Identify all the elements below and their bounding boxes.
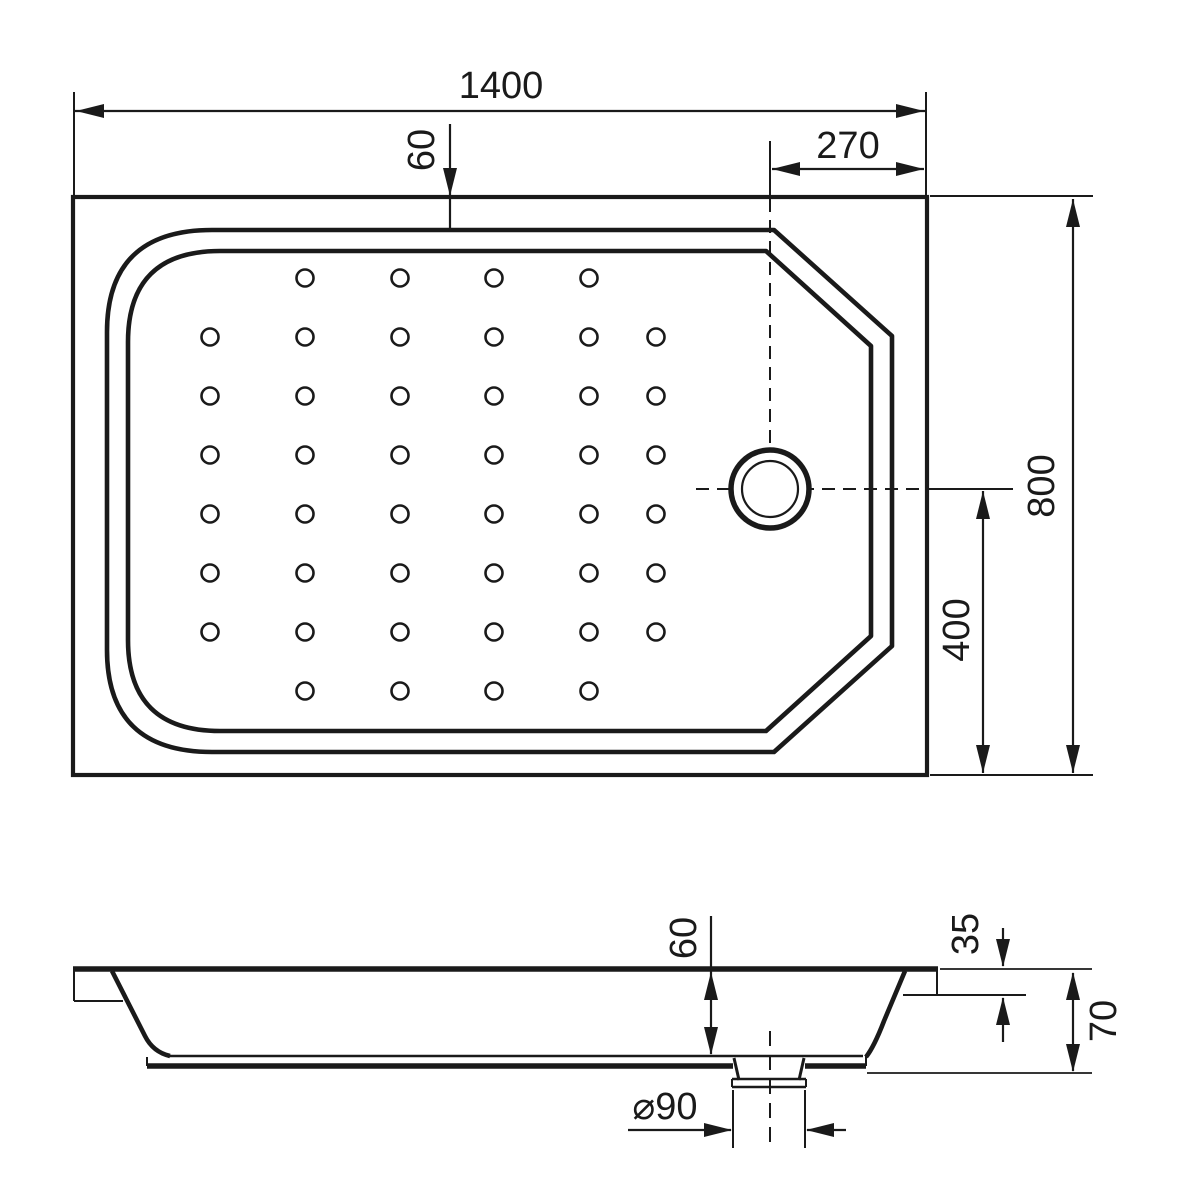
anti-slip-dot bbox=[392, 624, 409, 641]
anti-slip-dot bbox=[581, 388, 598, 405]
anti-slip-dot bbox=[581, 624, 598, 641]
dim-label-drain-right: 270 bbox=[816, 125, 879, 167]
anti-slip-dot bbox=[486, 683, 503, 700]
dim-label-rim-inset: 60 bbox=[401, 129, 443, 171]
anti-slip-dot bbox=[648, 624, 665, 641]
dim-label-basin-depth: 60 bbox=[663, 917, 705, 959]
arrowhead-down bbox=[1066, 1044, 1080, 1072]
arrowhead-down bbox=[996, 939, 1010, 967]
anti-slip-dot bbox=[648, 447, 665, 464]
anti-slip-dot bbox=[392, 388, 409, 405]
dim-label-ledge: 35 bbox=[945, 913, 987, 955]
dim-width-1400: 1400 bbox=[74, 65, 926, 197]
anti-slip-dot bbox=[392, 329, 409, 346]
side-view: 60 35 70 ⌀90 bbox=[73, 913, 1125, 1150]
anti-slip-dot bbox=[202, 329, 219, 346]
arrowhead-up bbox=[1066, 972, 1080, 1000]
anti-slip-dot bbox=[297, 388, 314, 405]
anti-slip-dot bbox=[392, 683, 409, 700]
anti-slip-dot bbox=[202, 565, 219, 582]
anti-slip-dot bbox=[486, 270, 503, 287]
arrowhead-down bbox=[1066, 745, 1080, 773]
anti-slip-dot bbox=[297, 447, 314, 464]
anti-slip-dot bbox=[202, 506, 219, 523]
left-basin-wall bbox=[112, 971, 170, 1056]
anti-slip-dot bbox=[297, 624, 314, 641]
drain-hole bbox=[731, 450, 809, 528]
anti-slip-dot bbox=[648, 565, 665, 582]
arrowhead-up bbox=[996, 997, 1010, 1025]
anti-slip-dot bbox=[581, 270, 598, 287]
anti-slip-dot bbox=[648, 388, 665, 405]
dim-total-height-70: 70 bbox=[867, 969, 1125, 1073]
anti-slip-dot bbox=[297, 565, 314, 582]
anti-slip-dot bbox=[392, 270, 409, 287]
dim-ledge-35: 35 bbox=[945, 913, 1010, 1042]
arrowhead-right bbox=[896, 162, 924, 176]
anti-slip-dot bbox=[486, 329, 503, 346]
anti-slip-dot bbox=[486, 447, 503, 464]
anti-slip-dot bbox=[581, 683, 598, 700]
arrowhead-left bbox=[806, 1123, 834, 1137]
dim-basin-depth-60: 60 bbox=[663, 916, 718, 1055]
dim-drain-right-270: 270 bbox=[770, 125, 924, 197]
anti-slip-dot bbox=[297, 683, 314, 700]
anti-slip-dot bbox=[202, 388, 219, 405]
dim-height-800: 800 bbox=[930, 196, 1093, 775]
arrowhead-left bbox=[772, 162, 800, 176]
arrowhead-down bbox=[704, 1027, 718, 1055]
arrowhead-right bbox=[704, 1123, 732, 1137]
anti-slip-dot bbox=[297, 270, 314, 287]
anti-slip-dot bbox=[486, 565, 503, 582]
anti-slip-dot bbox=[648, 329, 665, 346]
arrowhead-down bbox=[443, 168, 457, 196]
anti-slip-dot bbox=[486, 506, 503, 523]
anti-slip-dot bbox=[581, 506, 598, 523]
arrowhead-up bbox=[1066, 199, 1080, 227]
anti-slip-dot bbox=[297, 329, 314, 346]
arrowhead-right bbox=[896, 104, 924, 118]
dim-label-drain-diameter: ⌀90 bbox=[632, 1086, 697, 1128]
dim-label-width: 1400 bbox=[459, 65, 544, 107]
dim-drain-bottom-400: 400 bbox=[929, 489, 1013, 773]
anti-slip-dot bbox=[648, 506, 665, 523]
anti-slip-dot bbox=[392, 447, 409, 464]
anti-slip-dot bbox=[202, 624, 219, 641]
dim-drain-diameter-90: ⌀90 bbox=[628, 1086, 846, 1148]
arrowhead-left bbox=[76, 104, 104, 118]
anti-slip-dot bbox=[486, 624, 503, 641]
anti-slip-dot bbox=[297, 506, 314, 523]
anti-slip-dot bbox=[392, 506, 409, 523]
anti-slip-dot bbox=[581, 447, 598, 464]
anti-slip-dot bbox=[202, 447, 219, 464]
top-view: 1400 60 270 800 bbox=[73, 65, 1093, 775]
anti-slip-dot bbox=[392, 565, 409, 582]
dim-label-drain-bottom: 400 bbox=[936, 598, 978, 661]
dim-label-height: 800 bbox=[1021, 454, 1063, 517]
technical-drawing-page: 1400 60 270 800 bbox=[0, 0, 1178, 1178]
arrowhead-down bbox=[976, 745, 990, 773]
shower-tray-drawing: 1400 60 270 800 bbox=[0, 0, 1178, 1178]
anti-slip-dot bbox=[486, 388, 503, 405]
anti-slip-dot bbox=[581, 329, 598, 346]
right-basin-wall bbox=[866, 971, 905, 1057]
dim-label-total-height: 70 bbox=[1083, 1000, 1125, 1042]
anti-slip-dot bbox=[581, 565, 598, 582]
arrowhead-up bbox=[704, 972, 718, 1000]
arrowhead-up bbox=[976, 491, 990, 519]
